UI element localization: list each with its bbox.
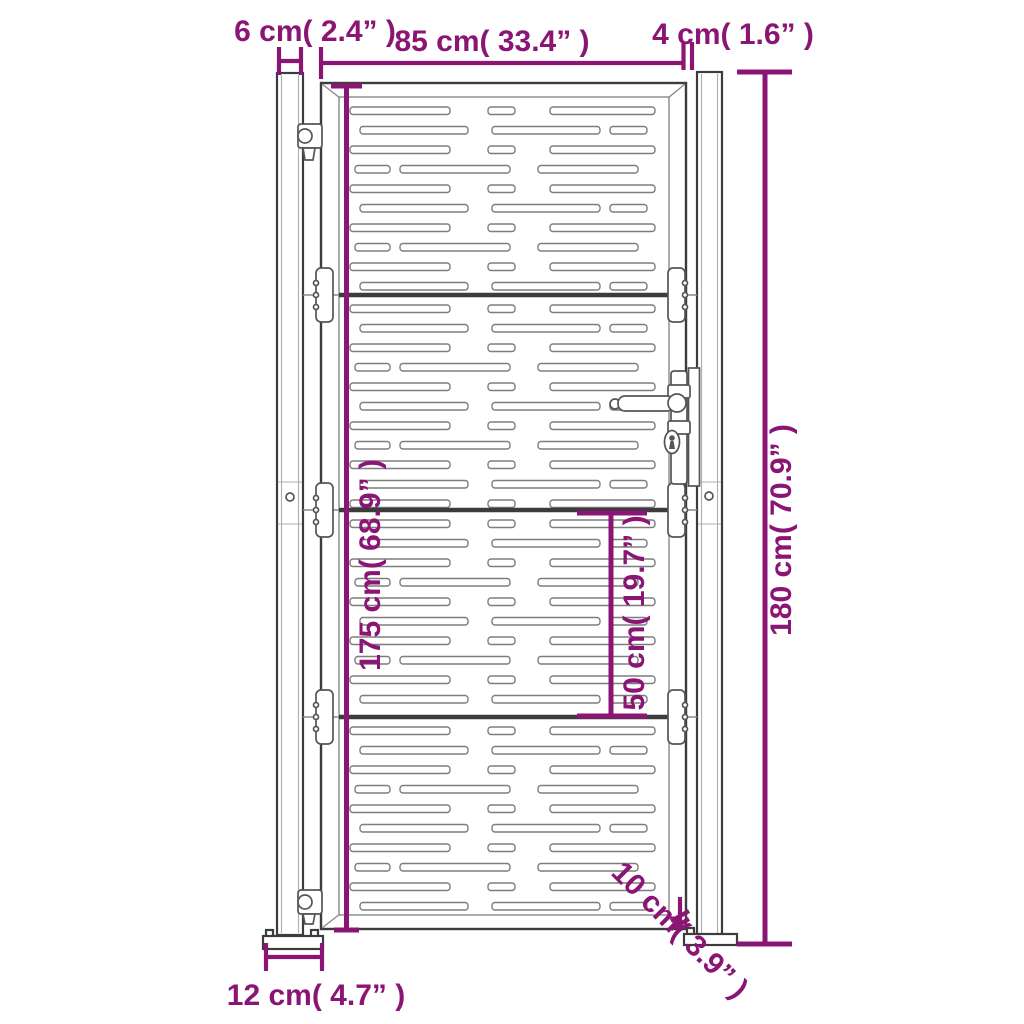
dim-label-gate-width: 85 cm( 33.4” ) [394,25,589,58]
right-post-body [697,72,722,935]
dim-label-section-height: 50 cm( 19.7” ) [618,515,651,710]
dim-label-base-plate-width: 12 cm( 4.7” ) [227,979,405,1012]
dimension-diagram: 6 cm( 2.4” ) 85 cm( 33.4” ) 4 cm( 1.6” )… [0,0,1024,1024]
left-post [277,73,303,935]
left-post-bolt [286,493,294,501]
left-post-body [277,73,303,935]
dim-label-post-width: 6 cm( 2.4” ) [234,15,396,48]
keyhole [665,431,680,454]
gate-diagram-canvas: 6 cm( 2.4” ) 85 cm( 33.4” ) 4 cm( 1.6” )… [0,0,1024,1024]
dim-label-total-height: 180 cm( 70.9” ) [765,424,798,636]
dim-post-width [279,47,301,75]
dim-label-gate-height: 175 cm( 68.9” ) [354,459,387,671]
right-post [697,72,722,935]
right-post-bolt [705,492,713,500]
dim-label-gap-width: 4 cm( 1.6” ) [652,18,814,51]
handle-lever [610,394,686,412]
